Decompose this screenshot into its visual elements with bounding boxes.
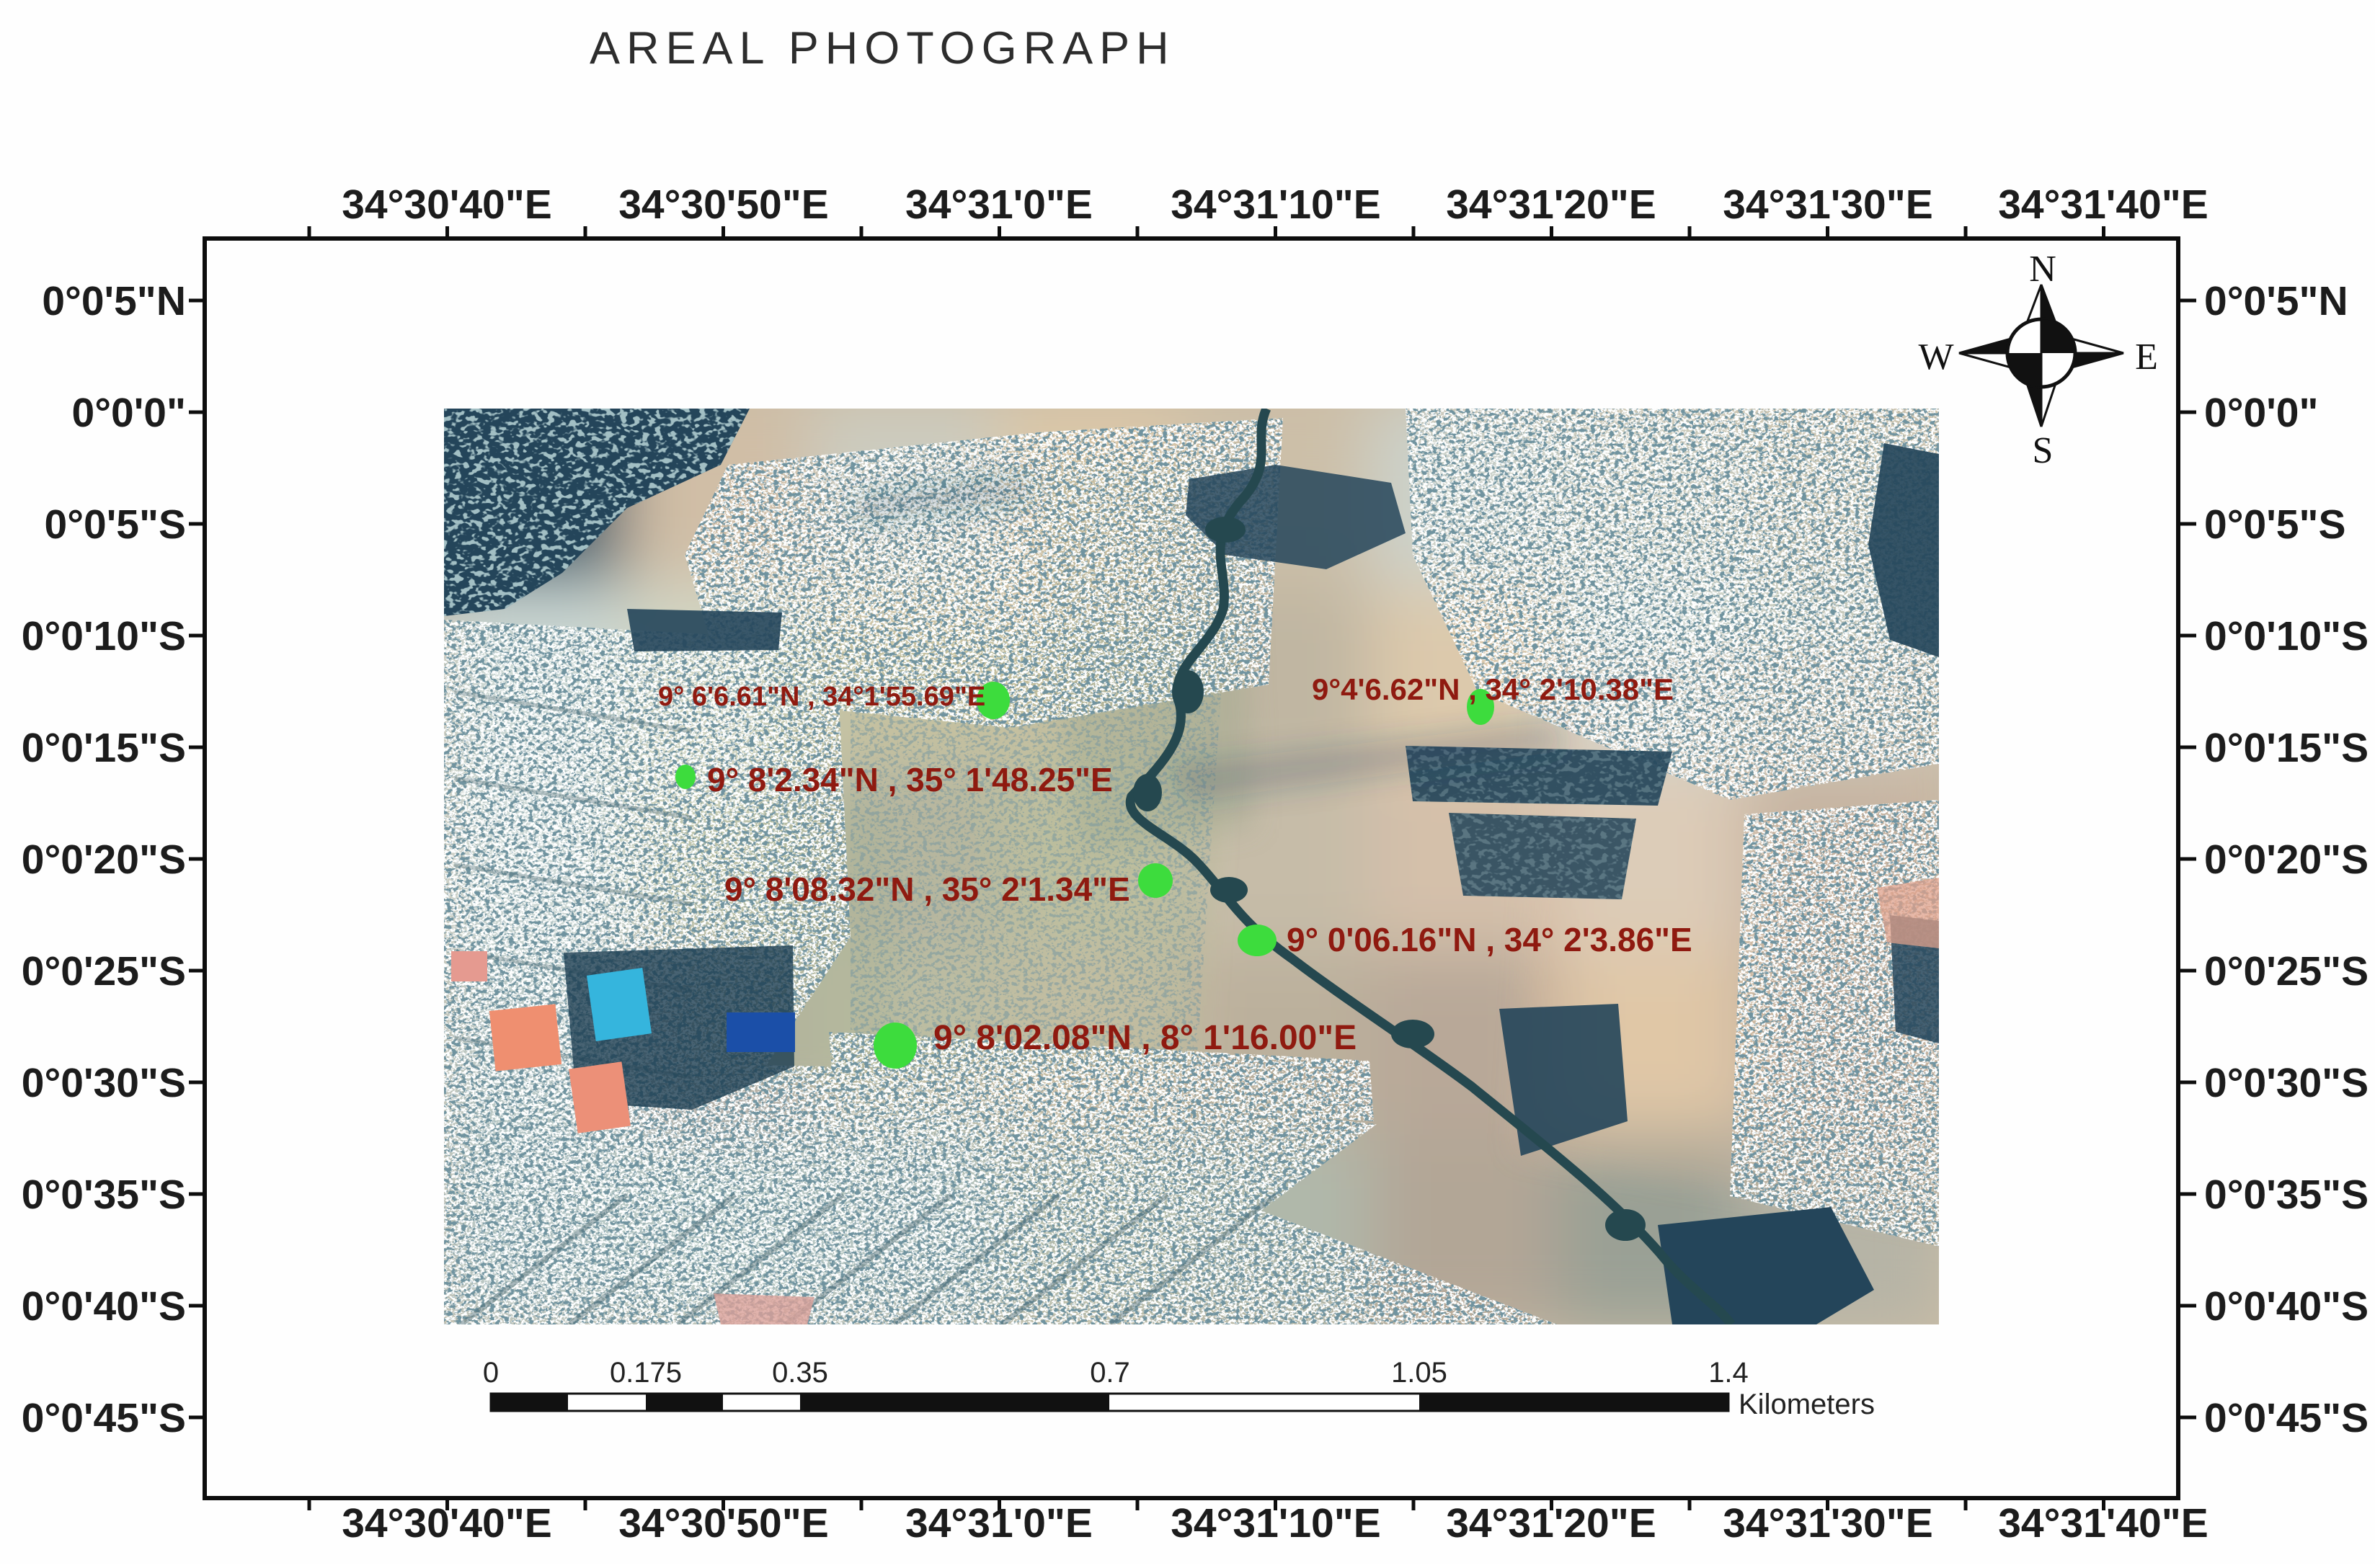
- svg-text:S: S: [2033, 430, 2054, 471]
- svg-text:0°0'5"N: 0°0'5"N: [42, 278, 186, 324]
- svg-text:34°31'10"E: 34°31'10"E: [1171, 182, 1381, 228]
- svg-text:AREAL PHOTOGRAPH: AREAL PHOTOGRAPH: [590, 23, 1176, 73]
- svg-text:Kilometers: Kilometers: [1739, 1389, 1875, 1420]
- svg-text:34°31'30"E: 34°31'30"E: [1723, 182, 1933, 228]
- svg-text:0°0'35"S: 0°0'35"S: [22, 1172, 186, 1218]
- svg-text:34°31'40"E: 34°31'40"E: [1998, 1500, 2208, 1546]
- svg-text:34°30'50"E: 34°30'50"E: [618, 1500, 829, 1546]
- svg-text:34°31'10"E: 34°31'10"E: [1171, 1500, 1381, 1546]
- svg-text:34°30'40"E: 34°30'40"E: [342, 182, 552, 228]
- svg-text:0°0'10"S: 0°0'10"S: [22, 613, 186, 659]
- svg-text:1.05: 1.05: [1391, 1357, 1447, 1389]
- svg-text:9° 6'6.61"N , 34°1'55.69"E: 9° 6'6.61"N , 34°1'55.69"E: [658, 682, 985, 712]
- svg-text:0.35: 0.35: [772, 1357, 828, 1389]
- svg-text:0°0'20"S: 0°0'20"S: [22, 837, 186, 883]
- svg-text:0°0'0": 0°0'0": [2204, 390, 2318, 436]
- svg-text:34°30'50"E: 34°30'50"E: [618, 182, 829, 228]
- svg-text:9° 8'02.08"N , 8° 1'16.00"E: 9° 8'02.08"N , 8° 1'16.00"E: [933, 1019, 1357, 1057]
- svg-text:N: N: [2029, 249, 2056, 290]
- svg-text:0°0'25"S: 0°0'25"S: [22, 948, 186, 994]
- svg-text:0°0'15"S: 0°0'15"S: [2204, 725, 2369, 771]
- svg-text:0°0'40"S: 0°0'40"S: [22, 1283, 186, 1329]
- svg-text:0°0'25"S: 0°0'25"S: [2204, 948, 2369, 994]
- svg-text:0°0'5"S: 0°0'5"S: [45, 502, 187, 548]
- svg-text:0°0'0": 0°0'0": [72, 390, 186, 436]
- svg-text:0°0'10"S: 0°0'10"S: [2204, 613, 2369, 659]
- svg-text:0°0'45"S: 0°0'45"S: [2204, 1395, 2369, 1441]
- svg-text:0°0'20"S: 0°0'20"S: [2204, 837, 2369, 883]
- svg-text:0.7: 0.7: [1090, 1357, 1130, 1389]
- svg-text:0°0'30"S: 0°0'30"S: [2204, 1060, 2369, 1106]
- svg-text:9° 0'06.16"N , 34° 2'3.86"E: 9° 0'06.16"N , 34° 2'3.86"E: [1287, 921, 1692, 958]
- svg-text:0: 0: [483, 1357, 499, 1389]
- svg-text:0.175: 0.175: [610, 1357, 682, 1389]
- svg-text:W: W: [1918, 337, 1953, 378]
- svg-text:0°0'5"N: 0°0'5"N: [2204, 278, 2348, 324]
- svg-text:34°31'0"E: 34°31'0"E: [905, 1500, 1093, 1546]
- svg-text:0°0'45"S: 0°0'45"S: [22, 1395, 186, 1441]
- svg-text:9° 8'2.34"N , 35° 1'48.25"E: 9° 8'2.34"N , 35° 1'48.25"E: [707, 761, 1113, 798]
- svg-text:34°30'40"E: 34°30'40"E: [342, 1500, 552, 1546]
- svg-text:34°31'20"E: 34°31'20"E: [1446, 182, 1656, 228]
- svg-text:E: E: [2135, 337, 2158, 378]
- svg-text:1.4: 1.4: [1708, 1357, 1749, 1389]
- svg-text:34°31'40"E: 34°31'40"E: [1998, 182, 2208, 228]
- svg-text:34°31'0"E: 34°31'0"E: [905, 182, 1093, 228]
- svg-text:34°31'20"E: 34°31'20"E: [1446, 1500, 1656, 1546]
- svg-text:0°0'15"S: 0°0'15"S: [22, 725, 186, 771]
- svg-text:0°0'40"S: 0°0'40"S: [2204, 1283, 2369, 1329]
- svg-text:0°0'5"S: 0°0'5"S: [2204, 502, 2346, 548]
- svg-text:9° 8'08.32"N , 35° 2'1.34"E: 9° 8'08.32"N , 35° 2'1.34"E: [724, 870, 1130, 908]
- svg-text:9°4'6.62"N , 34° 2'10.38"E: 9°4'6.62"N , 34° 2'10.38"E: [1312, 672, 1674, 706]
- svg-text:0°0'35"S: 0°0'35"S: [2204, 1172, 2369, 1218]
- svg-text:34°31'30"E: 34°31'30"E: [1723, 1500, 1933, 1546]
- svg-text:0°0'30"S: 0°0'30"S: [22, 1060, 186, 1106]
